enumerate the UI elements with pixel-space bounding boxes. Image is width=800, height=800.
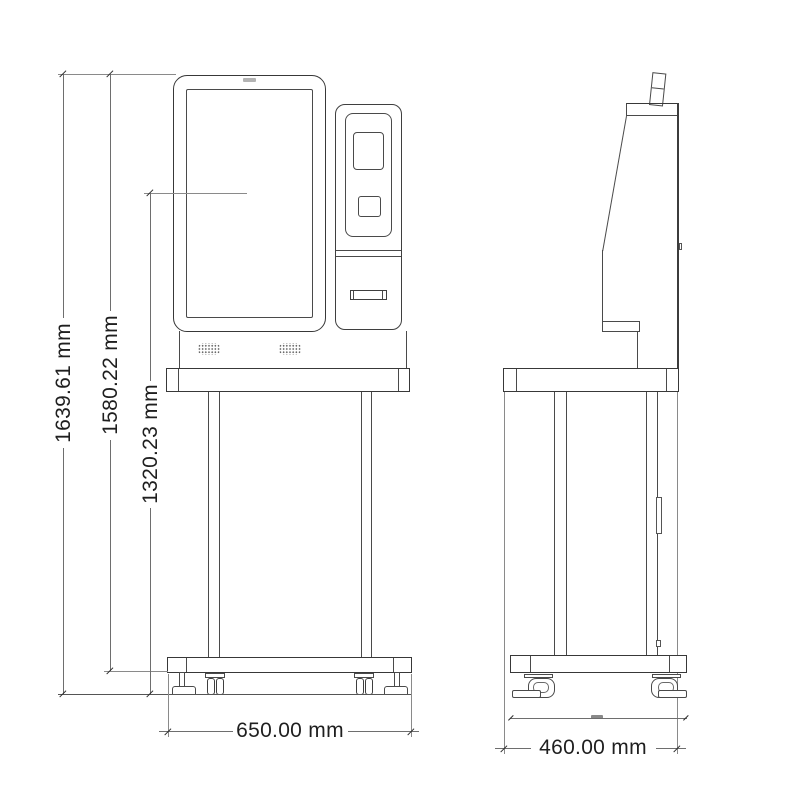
card-reader-window	[358, 196, 381, 217]
caster-wheel-right	[365, 678, 373, 695]
dimension-line-screen-center-height	[150, 508, 151, 694]
stand-leg-left	[208, 392, 220, 657]
side-foot-pad-back	[658, 690, 687, 699]
speaker-grille-left	[198, 343, 220, 355]
side-front-edge	[602, 250, 603, 321]
countertop-endcap	[178, 369, 179, 391]
extension-line-width-left	[168, 674, 169, 737]
scanner-arm-joint	[651, 87, 663, 89]
side-lower-front-edge	[637, 332, 638, 368]
extension-line-width-right	[411, 674, 412, 737]
printer-slot-endcap	[382, 291, 383, 299]
dimension-line-width	[159, 731, 233, 732]
printer-lip	[602, 321, 641, 333]
receipt-printer-slot	[350, 290, 387, 300]
side-back-edge	[677, 103, 679, 368]
caster-plate-right	[354, 673, 374, 678]
module-divider-line	[336, 250, 402, 251]
caster-wheel-left	[216, 678, 224, 695]
base-endcap	[186, 658, 187, 672]
dimension-label-overall-height: 1639.61 mm	[52, 323, 76, 443]
ground-line	[58, 694, 412, 695]
side-countertop-endcap	[516, 369, 517, 391]
side-foot-pad-front	[512, 690, 541, 699]
dimension-line-overall-height	[63, 448, 64, 694]
side-base-endcap	[669, 656, 670, 672]
dim-tick	[683, 715, 689, 721]
side-base-plate	[510, 655, 687, 673]
brand-logo	[243, 78, 256, 82]
side-front-slant	[602, 116, 627, 251]
speaker-grille-right	[279, 343, 301, 355]
dimension-line-depth	[495, 748, 531, 749]
side-connector-bump	[679, 243, 682, 250]
dimension-line-depth	[656, 748, 686, 749]
dimension-label-screen-center-height: 1320.23 mm	[139, 384, 163, 504]
caster-wheel-left	[207, 678, 215, 695]
dimension-line-overall-height	[63, 74, 64, 318]
leveling-foot-stem-right	[394, 672, 400, 687]
side-countertop-endcap	[666, 369, 667, 391]
countertop-endcap	[398, 369, 399, 391]
side-base-endcap	[530, 656, 531, 672]
dimension-label-depth: 460.00 mm	[539, 736, 647, 760]
dimension-label-base-height: 1580.22 mm	[99, 315, 123, 435]
side-stand-leg-front	[554, 392, 567, 655]
tiny-annotation	[591, 715, 604, 719]
extension-line-depth-back	[677, 392, 678, 754]
base-endcap	[393, 658, 394, 672]
dimension-label-width: 650.00 mm	[236, 719, 344, 743]
extension-line-base-bottom	[104, 671, 168, 672]
scanner-window	[353, 132, 384, 170]
screen-display	[186, 89, 313, 318]
scanner-arm	[649, 72, 666, 106]
caster-plate-left	[205, 673, 225, 678]
extension-line-screen-center	[144, 193, 247, 194]
module-divider-line	[336, 256, 402, 257]
leg-lower-latch	[656, 640, 661, 647]
side-head-top	[626, 103, 680, 116]
leveling-foot-stem-left	[179, 672, 185, 687]
dimension-line-base-height	[110, 74, 111, 311]
printer-slot-endcap	[353, 291, 354, 299]
technical-drawing-canvas: 1639.61 mm 1580.22 mm 1320.23 mm 650.00 …	[0, 0, 800, 800]
extension-line-top	[58, 74, 176, 75]
base-plate	[167, 657, 412, 673]
caster-wheel-right	[356, 678, 364, 695]
dimension-line-base-height	[110, 440, 111, 671]
side-countertop	[503, 368, 679, 392]
leg-latch-plate	[656, 497, 662, 534]
extension-line-depth-front	[504, 392, 505, 754]
stand-leg-right	[361, 392, 373, 657]
dimension-line-screen-center-height	[150, 193, 151, 381]
countertop	[166, 368, 410, 392]
